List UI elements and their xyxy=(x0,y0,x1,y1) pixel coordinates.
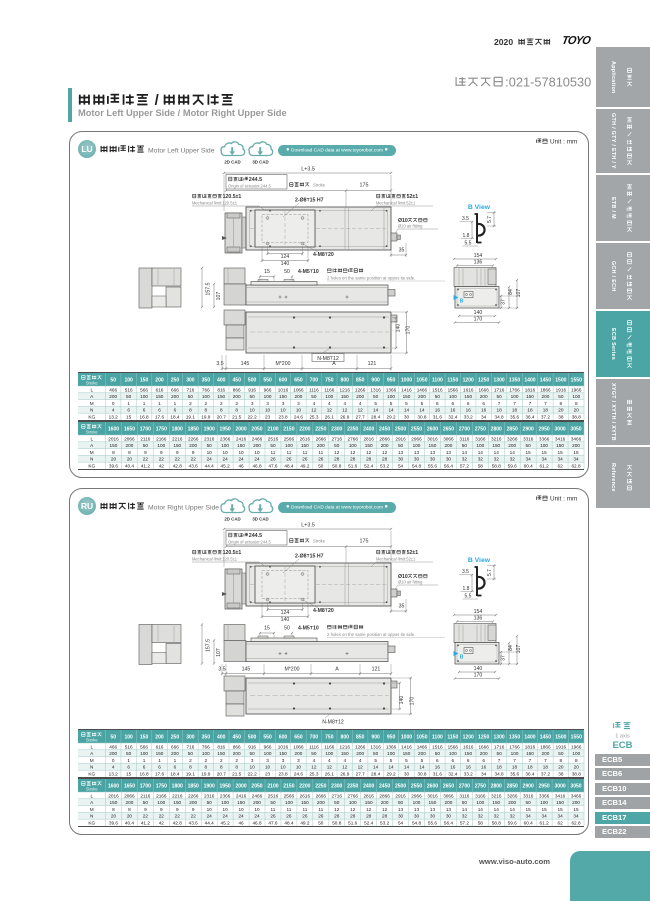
svg-text:3316: 3316 xyxy=(523,436,534,441)
svg-text:1000: 1000 xyxy=(401,378,412,384)
svg-text:34.8: 34.8 xyxy=(495,415,505,420)
svg-text:2516: 2516 xyxy=(268,436,279,441)
svg-text:23.8: 23.8 xyxy=(278,415,288,420)
svg-text:3: 3 xyxy=(251,401,254,406)
svg-text:18: 18 xyxy=(527,408,533,413)
svg-text:26.9: 26.9 xyxy=(340,415,350,420)
svg-text:7: 7 xyxy=(513,758,516,763)
svg-text:2766: 2766 xyxy=(348,793,359,798)
svg-text:M*200: M*200 xyxy=(275,361,290,367)
svg-text:2616: 2616 xyxy=(300,436,311,441)
svg-text:9: 9 xyxy=(192,807,195,812)
svg-text:N: N xyxy=(90,457,93,462)
svg-text:27.7: 27.7 xyxy=(356,772,366,777)
svg-text:150: 150 xyxy=(365,800,373,805)
svg-text:54: 54 xyxy=(398,821,404,826)
svg-text:100: 100 xyxy=(221,800,229,805)
svg-text:Mechanical limit:52±1: Mechanical limit:52±1 xyxy=(376,201,416,206)
svg-text:15: 15 xyxy=(557,807,563,812)
svg-text:800: 800 xyxy=(341,735,350,741)
svg-text:31.6: 31.6 xyxy=(433,415,443,420)
svg-text:62: 62 xyxy=(557,821,563,826)
svg-text:10: 10 xyxy=(280,765,286,770)
svg-text:3: 3 xyxy=(251,758,254,763)
svg-text:1300: 1300 xyxy=(493,378,504,384)
svg-text:18: 18 xyxy=(512,408,518,413)
svg-text:350: 350 xyxy=(202,378,211,384)
svg-text:10: 10 xyxy=(250,408,256,413)
svg-text:A: A xyxy=(332,361,336,367)
svg-text:100: 100 xyxy=(540,800,548,805)
svg-text:8: 8 xyxy=(205,765,208,770)
svg-text:16: 16 xyxy=(435,765,441,770)
svg-text:1100: 1100 xyxy=(432,378,443,384)
svg-text:100: 100 xyxy=(157,443,165,448)
svg-text:100: 100 xyxy=(325,751,333,756)
svg-text:8: 8 xyxy=(560,401,563,406)
svg-text:15: 15 xyxy=(264,626,270,632)
svg-text:2: 2 xyxy=(220,758,223,763)
svg-text:140: 140 xyxy=(474,666,483,672)
svg-text:35: 35 xyxy=(399,248,405,254)
svg-text:1766: 1766 xyxy=(509,744,520,749)
svg-text:1000: 1000 xyxy=(401,735,412,741)
svg-text:58.8: 58.8 xyxy=(492,464,502,469)
svg-text:Stroke: Stroke xyxy=(313,183,326,188)
svg-text:200: 200 xyxy=(356,751,364,756)
svg-text:2050: 2050 xyxy=(251,427,262,433)
svg-text:14: 14 xyxy=(462,807,468,812)
svg-text:170: 170 xyxy=(474,673,483,679)
svg-text:13: 13 xyxy=(430,450,436,455)
svg-text:1600: 1600 xyxy=(108,427,119,433)
svg-text:2816: 2816 xyxy=(363,436,374,441)
svg-text:150: 150 xyxy=(237,800,245,805)
svg-text:3066: 3066 xyxy=(443,436,454,441)
svg-text:1: 1 xyxy=(158,758,161,763)
svg-text:2-Ø8: 2-Ø8 xyxy=(295,554,307,560)
svg-text:1400: 1400 xyxy=(524,378,535,384)
svg-text:700: 700 xyxy=(310,735,319,741)
svg-text:1466: 1466 xyxy=(417,387,428,392)
svg-text:Mechanical limit:52±1: Mechanical limit:52±1 xyxy=(376,557,416,562)
svg-text:1916: 1916 xyxy=(556,387,567,392)
svg-text:13: 13 xyxy=(446,807,452,812)
svg-text:200: 200 xyxy=(508,443,516,448)
svg-text:3266: 3266 xyxy=(507,436,518,441)
svg-text:36.4: 36.4 xyxy=(525,772,535,777)
svg-text:1250: 1250 xyxy=(478,735,489,741)
svg-text:M: M xyxy=(90,401,94,406)
svg-text:8: 8 xyxy=(575,401,578,406)
svg-text:6: 6 xyxy=(174,408,177,413)
svg-text:250: 250 xyxy=(171,735,180,741)
svg-text:33.2: 33.2 xyxy=(464,415,474,420)
svg-text:38.8: 38.8 xyxy=(572,415,582,420)
svg-text:1566: 1566 xyxy=(448,387,459,392)
svg-text:8: 8 xyxy=(205,408,208,413)
svg-text:2950: 2950 xyxy=(539,427,550,433)
svg-text:11: 11 xyxy=(302,450,307,455)
svg-text:10: 10 xyxy=(238,450,244,455)
svg-text:53.2: 53.2 xyxy=(380,464,390,469)
svg-text:56.4: 56.4 xyxy=(444,821,454,826)
svg-text:300: 300 xyxy=(186,378,195,384)
svg-text:12: 12 xyxy=(311,765,317,770)
svg-text:100: 100 xyxy=(264,751,272,756)
svg-text:50: 50 xyxy=(284,626,290,632)
svg-text:47.6: 47.6 xyxy=(268,464,278,469)
svg-text:200: 200 xyxy=(253,443,261,448)
svg-text:20: 20 xyxy=(574,765,580,770)
svg-text:50: 50 xyxy=(270,800,276,805)
svg-text:50: 50 xyxy=(110,378,116,384)
svg-text:200: 200 xyxy=(171,394,179,399)
svg-text:23.8: 23.8 xyxy=(278,772,288,777)
svg-text:26: 26 xyxy=(318,814,324,819)
svg-text:4: 4 xyxy=(112,765,115,770)
svg-text:1516: 1516 xyxy=(432,387,443,392)
svg-text:136: 136 xyxy=(474,260,483,266)
svg-text:4: 4 xyxy=(328,401,331,406)
svg-text:9: 9 xyxy=(192,450,195,455)
svg-text:Origin of actuator:244.5: Origin of actuator:244.5 xyxy=(228,184,272,189)
svg-text:200: 200 xyxy=(126,800,134,805)
svg-text:52.4: 52.4 xyxy=(364,821,374,826)
svg-text:3266: 3266 xyxy=(507,793,518,798)
svg-text:2250: 2250 xyxy=(315,784,326,790)
svg-text:600: 600 xyxy=(279,735,288,741)
svg-text:M: M xyxy=(90,807,94,812)
svg-text:1200: 1200 xyxy=(463,735,474,741)
svg-text:100: 100 xyxy=(572,394,580,399)
svg-text:1466: 1466 xyxy=(417,744,428,749)
svg-text:13: 13 xyxy=(414,450,420,455)
svg-text:8: 8 xyxy=(220,408,223,413)
svg-text:50: 50 xyxy=(143,443,149,448)
svg-text:32: 32 xyxy=(494,457,500,462)
svg-text:30: 30 xyxy=(430,814,436,819)
svg-text:1416: 1416 xyxy=(401,387,412,392)
svg-text:14: 14 xyxy=(404,765,410,770)
svg-text:100: 100 xyxy=(157,800,165,805)
svg-text:2650: 2650 xyxy=(443,427,454,433)
svg-text:37.2: 37.2 xyxy=(541,415,551,420)
svg-text:2750: 2750 xyxy=(475,427,486,433)
svg-text:2050: 2050 xyxy=(251,784,262,790)
svg-text:136: 136 xyxy=(474,616,483,622)
svg-text:50: 50 xyxy=(284,269,290,275)
svg-text:7: 7 xyxy=(513,401,516,406)
svg-text:1850: 1850 xyxy=(188,427,199,433)
svg-text:18: 18 xyxy=(543,408,549,413)
svg-text:244.5: 244.5 xyxy=(249,533,262,539)
svg-text:61.2: 61.2 xyxy=(540,821,550,826)
svg-text:12: 12 xyxy=(334,807,340,812)
svg-text:1266: 1266 xyxy=(355,744,366,749)
svg-text:150: 150 xyxy=(217,394,225,399)
svg-text:26: 26 xyxy=(270,814,276,819)
svg-text:12: 12 xyxy=(327,408,333,413)
svg-text:46: 46 xyxy=(238,464,244,469)
svg-text:2616: 2616 xyxy=(300,793,311,798)
svg-text:43.6: 43.6 xyxy=(189,821,199,826)
svg-text:22: 22 xyxy=(143,457,149,462)
svg-text:100: 100 xyxy=(124,378,133,384)
svg-text:32.4: 32.4 xyxy=(448,772,458,777)
svg-text:34: 34 xyxy=(557,457,563,462)
svg-text:2066: 2066 xyxy=(124,793,135,798)
svg-text:12: 12 xyxy=(338,720,344,726)
svg-text:2 holes on the same position a: 2 holes on the same position at oppos it… xyxy=(327,632,415,637)
svg-text:50: 50 xyxy=(318,821,324,826)
svg-text:400: 400 xyxy=(217,735,226,741)
svg-text:200: 200 xyxy=(171,751,179,756)
svg-text:2150: 2150 xyxy=(283,427,294,433)
svg-text:5: 5 xyxy=(390,758,393,763)
svg-text:34: 34 xyxy=(481,772,487,777)
svg-text:150: 150 xyxy=(110,800,118,805)
svg-text:55.6: 55.6 xyxy=(428,821,438,826)
svg-text:15: 15 xyxy=(542,807,548,812)
svg-text:Stroke: Stroke xyxy=(86,429,99,434)
svg-text:49.2: 49.2 xyxy=(300,464,310,469)
svg-text:12: 12 xyxy=(366,807,372,812)
svg-text:34: 34 xyxy=(526,814,532,819)
svg-text:200: 200 xyxy=(418,751,426,756)
svg-text:100: 100 xyxy=(325,394,333,399)
svg-text:100: 100 xyxy=(572,751,580,756)
svg-text:121: 121 xyxy=(372,667,381,673)
svg-text:4: 4 xyxy=(343,758,346,763)
svg-text:16: 16 xyxy=(450,408,456,413)
svg-text:30: 30 xyxy=(446,457,452,462)
svg-text:100: 100 xyxy=(540,443,548,448)
svg-text:50: 50 xyxy=(373,751,379,756)
svg-text:1966: 1966 xyxy=(571,387,582,392)
svg-text:26: 26 xyxy=(286,814,292,819)
svg-text:24: 24 xyxy=(223,814,229,819)
svg-text:100: 100 xyxy=(387,394,395,399)
svg-text:3: 3 xyxy=(297,758,300,763)
svg-text:54.8: 54.8 xyxy=(412,464,422,469)
svg-text:5: 5 xyxy=(421,758,424,763)
svg-text:20: 20 xyxy=(111,814,117,819)
svg-text:Stroke: Stroke xyxy=(86,737,99,742)
svg-text:150: 150 xyxy=(492,800,500,805)
svg-text:100: 100 xyxy=(413,800,421,805)
svg-text:26: 26 xyxy=(302,457,308,462)
svg-text:20: 20 xyxy=(127,814,133,819)
svg-text:Mechanical limit:120.5±1: Mechanical limit:120.5±1 xyxy=(192,201,238,206)
svg-text:300: 300 xyxy=(186,735,195,741)
svg-text:46.8: 46.8 xyxy=(252,464,262,469)
svg-text:15 H7: 15 H7 xyxy=(310,554,324,560)
svg-text:8: 8 xyxy=(235,408,238,413)
svg-text:816: 816 xyxy=(217,387,225,392)
svg-text:2: 2 xyxy=(205,401,208,406)
svg-text:18: 18 xyxy=(496,408,502,413)
svg-text:2350: 2350 xyxy=(347,784,358,790)
svg-text:18.4: 18.4 xyxy=(170,415,180,420)
svg-text:1316: 1316 xyxy=(370,744,381,749)
svg-text:516: 516 xyxy=(125,744,133,749)
svg-text:6: 6 xyxy=(143,408,146,413)
svg-text:2066: 2066 xyxy=(124,436,135,441)
svg-text:34: 34 xyxy=(542,457,548,462)
svg-text:500: 500 xyxy=(248,378,257,384)
svg-text:3: 3 xyxy=(266,758,269,763)
svg-text:22.2: 22.2 xyxy=(248,772,258,777)
svg-text:28: 28 xyxy=(366,457,372,462)
svg-text:145: 145 xyxy=(241,361,250,367)
svg-text:20: 20 xyxy=(111,457,117,462)
svg-text:2: 2 xyxy=(235,401,238,406)
svg-text:100: 100 xyxy=(449,751,457,756)
svg-text:1650: 1650 xyxy=(124,427,135,433)
svg-text:850: 850 xyxy=(356,378,365,384)
svg-text:62.8: 62.8 xyxy=(571,821,581,826)
svg-text:1166: 1166 xyxy=(324,387,334,392)
svg-text:24.6: 24.6 xyxy=(294,415,304,420)
svg-text:39.6: 39.6 xyxy=(109,464,119,469)
svg-text:5: 5 xyxy=(374,758,377,763)
svg-text:150: 150 xyxy=(156,394,164,399)
svg-text:14: 14 xyxy=(419,408,425,413)
svg-text:650: 650 xyxy=(294,735,303,741)
svg-text:6: 6 xyxy=(158,408,161,413)
svg-text:50: 50 xyxy=(373,394,379,399)
svg-text:107: 107 xyxy=(216,648,222,657)
svg-text:57.2: 57.2 xyxy=(460,464,470,469)
svg-text:6: 6 xyxy=(174,765,177,770)
svg-text:200: 200 xyxy=(381,800,389,805)
svg-text:3: 3 xyxy=(266,401,269,406)
svg-text:8: 8 xyxy=(189,765,192,770)
svg-text:42: 42 xyxy=(159,464,165,469)
svg-text:35: 35 xyxy=(399,604,405,610)
svg-text:1650: 1650 xyxy=(124,784,135,790)
svg-text:28.4: 28.4 xyxy=(371,772,381,777)
svg-text:11: 11 xyxy=(286,450,291,455)
svg-text:100: 100 xyxy=(511,394,519,399)
svg-text:16: 16 xyxy=(481,765,487,770)
svg-text:52.4: 52.4 xyxy=(364,464,374,469)
svg-text:900: 900 xyxy=(371,378,380,384)
svg-text:616: 616 xyxy=(156,744,164,749)
svg-text:B: B xyxy=(460,299,464,305)
svg-text:3116: 3116 xyxy=(459,793,469,798)
svg-text:35.6: 35.6 xyxy=(510,772,520,777)
svg-text:150: 150 xyxy=(341,394,349,399)
svg-text:4: 4 xyxy=(328,758,331,763)
svg-text:28: 28 xyxy=(382,814,388,819)
svg-text:2100: 2100 xyxy=(267,784,278,790)
svg-text:1016: 1016 xyxy=(278,387,289,392)
svg-text:2450: 2450 xyxy=(379,427,390,433)
svg-text:50: 50 xyxy=(311,394,317,399)
svg-text:1700: 1700 xyxy=(140,784,151,790)
svg-text:2816: 2816 xyxy=(363,793,374,798)
svg-text:29.2: 29.2 xyxy=(386,415,396,420)
svg-text:14: 14 xyxy=(419,765,425,770)
svg-text:6: 6 xyxy=(436,401,439,406)
svg-text:516: 516 xyxy=(125,387,133,392)
svg-text:L: L xyxy=(90,387,93,392)
svg-text:11: 11 xyxy=(271,807,276,812)
svg-text:2866: 2866 xyxy=(379,793,390,798)
svg-text:59.6: 59.6 xyxy=(508,464,518,469)
svg-text:4: 4 xyxy=(359,401,362,406)
svg-text:10: 10 xyxy=(280,408,286,413)
svg-text:6: 6 xyxy=(467,401,470,406)
svg-text:9: 9 xyxy=(176,807,179,812)
svg-text:1866: 1866 xyxy=(540,744,551,749)
svg-text:200: 200 xyxy=(233,394,241,399)
svg-text:140: 140 xyxy=(281,617,290,623)
svg-text:2900: 2900 xyxy=(523,784,534,790)
svg-text:12: 12 xyxy=(334,450,340,455)
svg-text:14: 14 xyxy=(478,450,484,455)
svg-text:2266: 2266 xyxy=(188,793,199,798)
svg-text:200: 200 xyxy=(541,394,549,399)
svg-text:38.8: 38.8 xyxy=(572,772,582,777)
svg-text:200: 200 xyxy=(508,800,516,805)
svg-text:2516: 2516 xyxy=(268,793,279,798)
svg-text:28: 28 xyxy=(334,814,340,819)
svg-text:KG: KG xyxy=(88,464,95,469)
svg-text:50: 50 xyxy=(398,800,404,805)
svg-text:2500: 2500 xyxy=(395,784,406,790)
svg-text:1716: 1716 xyxy=(494,744,505,749)
svg-text:2916: 2916 xyxy=(395,793,406,798)
svg-text:150: 150 xyxy=(429,800,437,805)
svg-text:10: 10 xyxy=(296,765,302,770)
svg-text:2966: 2966 xyxy=(411,436,422,441)
svg-text:N-M8: N-M8 xyxy=(322,720,335,726)
svg-text:200: 200 xyxy=(445,443,453,448)
svg-text:L+3.5: L+3.5 xyxy=(301,167,315,173)
svg-text:26: 26 xyxy=(318,457,324,462)
svg-text:48.4: 48.4 xyxy=(284,821,294,826)
svg-text:50: 50 xyxy=(526,800,532,805)
svg-text:150: 150 xyxy=(217,751,225,756)
svg-text:2266: 2266 xyxy=(188,436,199,441)
svg-text:1116: 1116 xyxy=(309,387,319,392)
svg-text:150: 150 xyxy=(429,443,437,448)
svg-text:22: 22 xyxy=(175,457,181,462)
svg-text:4-M5: 4-M5 xyxy=(298,626,310,632)
svg-text:25.3: 25.3 xyxy=(309,772,319,777)
svg-text:52±1: 52±1 xyxy=(407,194,419,200)
svg-text:21.5: 21.5 xyxy=(232,415,242,420)
svg-text:1800: 1800 xyxy=(172,784,183,790)
svg-text:KG: KG xyxy=(88,415,95,420)
svg-text:46.8: 46.8 xyxy=(252,821,262,826)
svg-text:15: 15 xyxy=(557,450,563,455)
svg-text:1550: 1550 xyxy=(571,735,582,741)
svg-text:716: 716 xyxy=(186,387,194,392)
svg-text:18: 18 xyxy=(512,765,518,770)
svg-text:KG: KG xyxy=(88,772,95,777)
svg-text:2700: 2700 xyxy=(459,784,470,790)
svg-text:25.3: 25.3 xyxy=(309,415,319,420)
svg-text:32: 32 xyxy=(462,457,468,462)
svg-text:150: 150 xyxy=(403,751,411,756)
svg-text:100: 100 xyxy=(413,443,421,448)
svg-text:50: 50 xyxy=(496,751,502,756)
svg-text:2900: 2900 xyxy=(523,427,534,433)
